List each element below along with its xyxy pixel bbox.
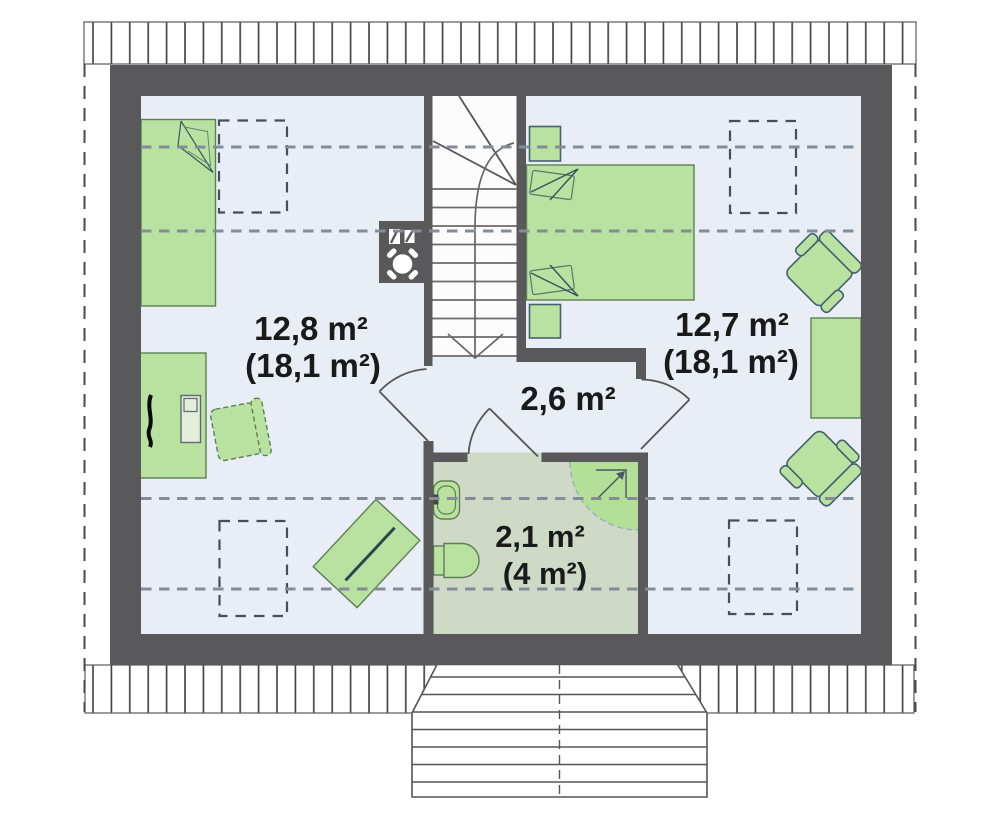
svg-text:12,8 m²: 12,8 m² — [254, 310, 368, 347]
svg-text:(18,1 m²): (18,1 m²) — [663, 343, 799, 380]
svg-text:12,7 m²: 12,7 m² — [675, 306, 789, 343]
svg-text:2,1 m²: 2,1 m² — [495, 519, 585, 554]
svg-text:(18,1 m²): (18,1 m²) — [245, 347, 381, 384]
svg-text:(4 m²): (4 m²) — [503, 556, 587, 591]
svg-text:2,6 m²: 2,6 m² — [520, 380, 615, 417]
